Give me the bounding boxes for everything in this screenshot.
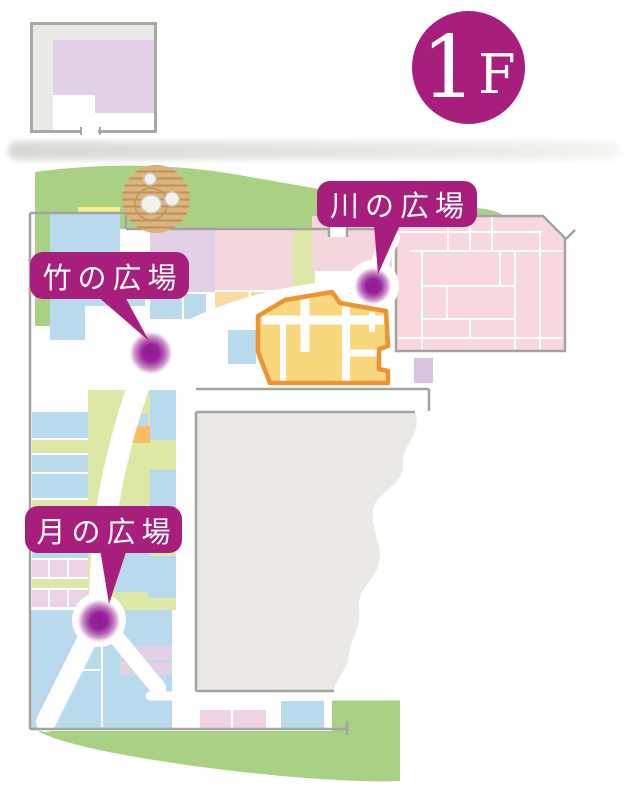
plaza-marker-take[interactable] — [129, 331, 173, 375]
floor-badge[interactable]: 1 F — [412, 11, 525, 124]
floor-letter: F — [478, 48, 515, 102]
plaza-marker-tsuki[interactable] — [77, 599, 121, 643]
plaza-label-kawa[interactable]: 川の広場 — [317, 181, 477, 227]
inset-entrance-tick — [80, 127, 82, 135]
floor-number: 1 — [421, 25, 476, 111]
inset-entrance-gap — [82, 128, 98, 134]
inset-cutout — [53, 95, 95, 130]
inset-cutout — [95, 113, 154, 130]
stone-icon — [141, 195, 161, 213]
shadow-band — [8, 141, 620, 160]
overview-inset-map — [30, 22, 157, 133]
pink-room-wing — [396, 216, 565, 351]
inset-entrance-tick — [99, 127, 101, 135]
courtyard — [196, 412, 417, 691]
plaza-label-tsuki[interactable]: 月の広場 — [25, 506, 182, 553]
floor-map-canvas: 1 F 川の広場 竹の広場 月の広場 — [0, 0, 640, 792]
plaza-marker-kawa[interactable] — [354, 267, 392, 305]
plaza-label-text: 月の広場 — [30, 509, 176, 551]
plaza-label-text: 川の広場 — [324, 183, 470, 225]
stone-icon — [165, 192, 179, 206]
plaza-label-text: 竹の広場 — [36, 255, 182, 297]
plaza-label-take[interactable]: 竹の広場 — [30, 252, 189, 299]
stone-icon — [144, 173, 156, 185]
zen-garden-icon — [122, 165, 190, 233]
